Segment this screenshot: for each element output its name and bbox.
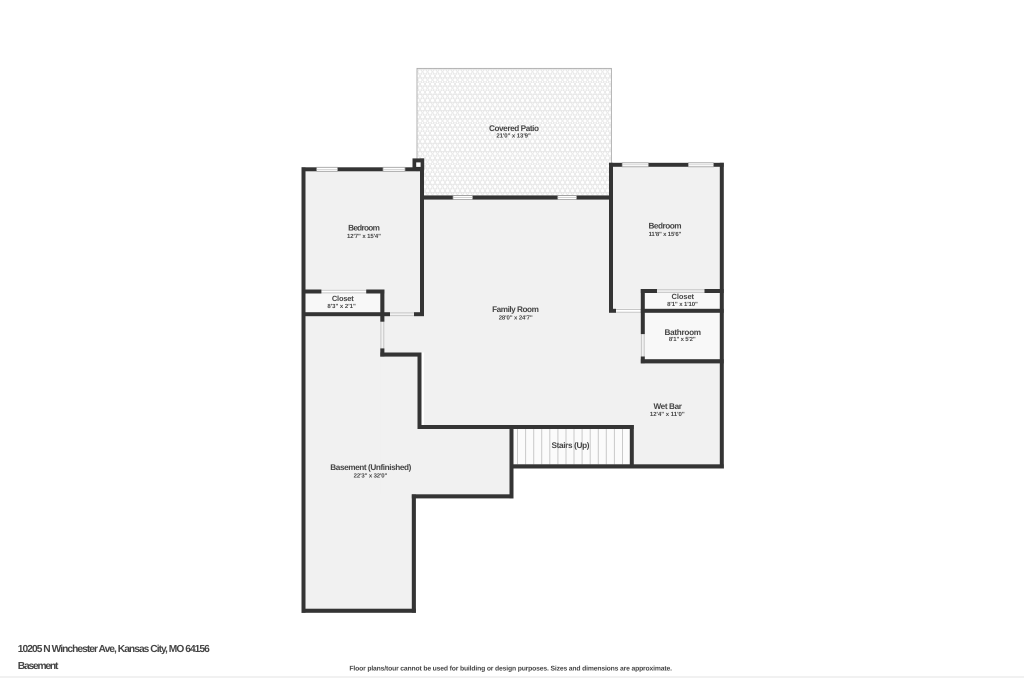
svg-text:Closet: Closet — [332, 294, 354, 303]
svg-text:Closet: Closet — [672, 292, 695, 301]
svg-text:Wet Bar: Wet Bar — [653, 402, 682, 411]
svg-text:8'1" x 5'2": 8'1" x 5'2" — [669, 336, 696, 343]
svg-text:12'7" x 15'4": 12'7" x 15'4" — [347, 233, 381, 240]
svg-text:Bedroom: Bedroom — [649, 222, 682, 231]
svg-text:Basement (Unfinished): Basement (Unfinished) — [330, 463, 411, 472]
svg-text:Bedroom: Bedroom — [348, 223, 380, 232]
svg-text:Covered Patio: Covered Patio — [489, 124, 539, 133]
svg-text:22'3" x 32'0": 22'3" x 32'0" — [354, 473, 388, 480]
svg-text:8'1" x 1'10": 8'1" x 1'10" — [667, 301, 698, 308]
svg-text:Floor plans/tour cannot be use: Floor plans/tour cannot be used for buil… — [349, 665, 672, 672]
svg-text:Bathroom: Bathroom — [665, 328, 702, 337]
svg-text:Basement: Basement — [18, 661, 59, 672]
svg-text:28'0" x 24'7": 28'0" x 24'7" — [499, 315, 533, 322]
svg-text:10205 N Winchester Ave, Kansas: 10205 N Winchester Ave, Kansas City, MO … — [18, 644, 210, 655]
svg-text:12'4" x 11'0": 12'4" x 11'0" — [650, 411, 685, 418]
svg-text:Stairs (Up): Stairs (Up) — [552, 441, 590, 450]
svg-text:8'3" x 2'1": 8'3" x 2'1" — [327, 303, 356, 310]
svg-text:21'0" x 13'9": 21'0" x 13'9" — [496, 133, 531, 140]
svg-text:11'8" x 15'6": 11'8" x 15'6" — [649, 231, 682, 238]
svg-text:Family Room: Family Room — [492, 305, 539, 314]
